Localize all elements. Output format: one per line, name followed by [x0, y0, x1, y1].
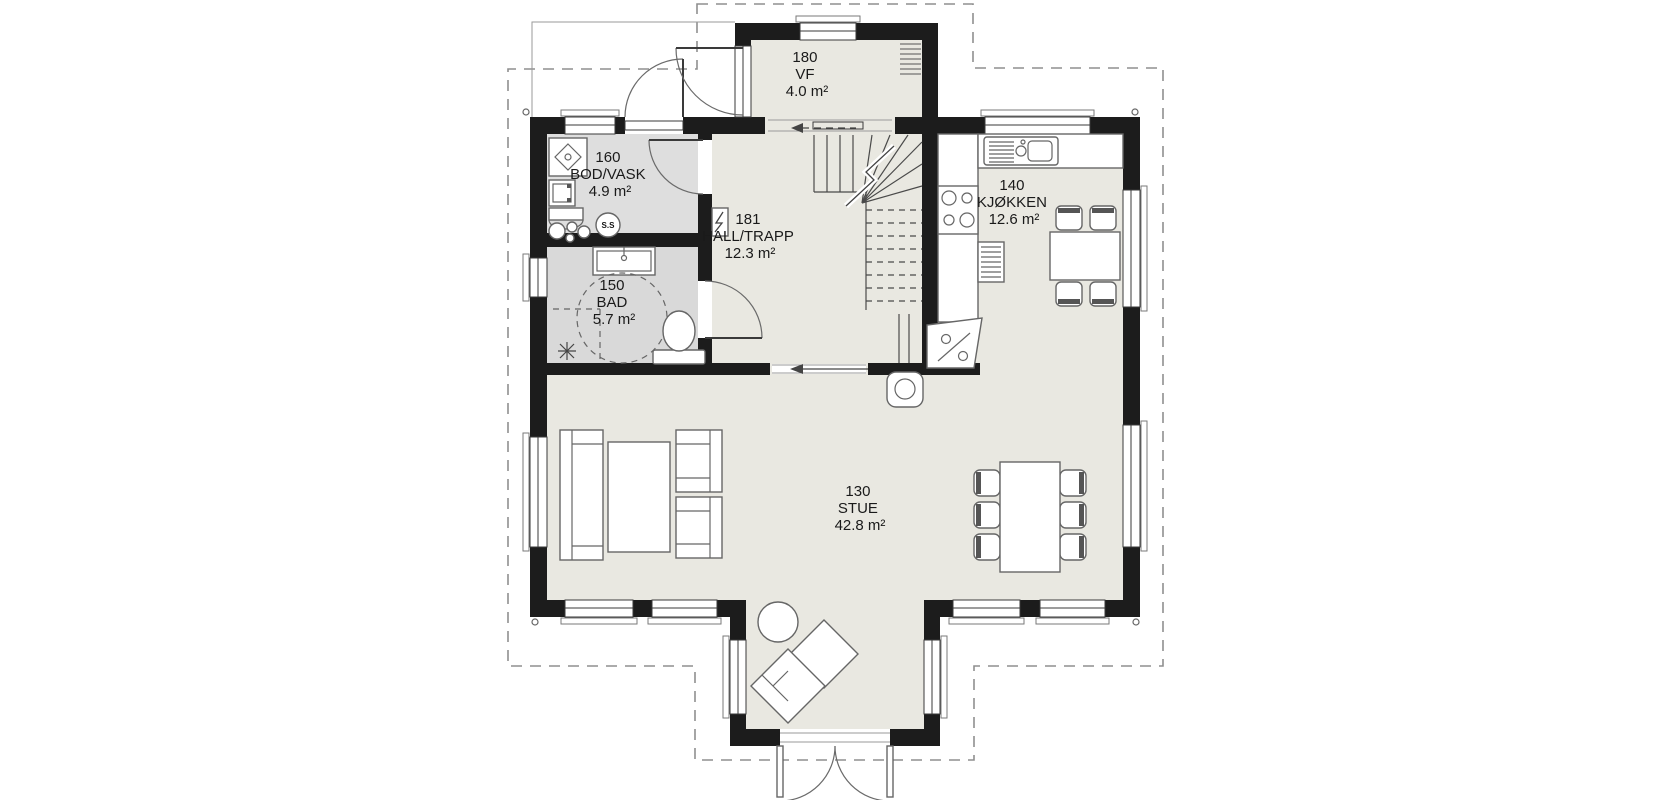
water-heater-icon: S.S: [596, 213, 620, 237]
window-stue-right: [1123, 421, 1147, 551]
downspout-icon: [1132, 109, 1138, 115]
downspout-icon: [1133, 619, 1139, 625]
floor-plan-page: S.S: [0, 0, 1670, 800]
window-bad-left: [523, 254, 547, 301]
downspout-icon: [523, 109, 529, 115]
kitchen-sink-icon: [984, 137, 1058, 165]
window-stue-left: [523, 433, 547, 551]
window-bottom-right-2: [1036, 600, 1109, 624]
window-kitchen-right: [1123, 186, 1147, 311]
window-kitchen-top: [981, 110, 1094, 134]
refrigerator-icon: [978, 242, 1004, 282]
dishwasher-icon: [927, 318, 982, 368]
window-bottom-right-1: [949, 600, 1024, 624]
window-vf-top: [796, 16, 860, 40]
washing-machine-icon: [549, 180, 575, 206]
doormat-icon: [900, 44, 921, 74]
armchair: [676, 497, 722, 558]
round-table: [758, 602, 798, 642]
window-bay-left: [723, 636, 746, 718]
shower-drain-icon: [558, 342, 576, 360]
dining-table-group: [974, 462, 1086, 572]
stove-icon: [938, 186, 978, 234]
window-bottom-left-2: [648, 600, 721, 624]
french-doors-bay: [777, 729, 893, 800]
window-bay-right: [924, 636, 947, 718]
dining-table: [1000, 462, 1060, 572]
downspout-icon: [532, 619, 538, 625]
window-bod-top: [561, 110, 619, 134]
door-entrance: [676, 46, 751, 117]
door-leaf: [777, 746, 783, 797]
vanity-sink-icon: [593, 247, 655, 275]
door-bod-exterior: [625, 59, 683, 134]
door-leaf: [887, 746, 893, 797]
sofa: [560, 430, 603, 560]
water-heater-label: S.S: [602, 221, 616, 230]
armchair: [676, 430, 722, 492]
wood-stove-icon: [887, 372, 923, 407]
floor-plan-drawing: S.S: [0, 0, 1670, 800]
coffee-table: [608, 442, 670, 552]
window-bottom-left-1: [561, 600, 637, 624]
